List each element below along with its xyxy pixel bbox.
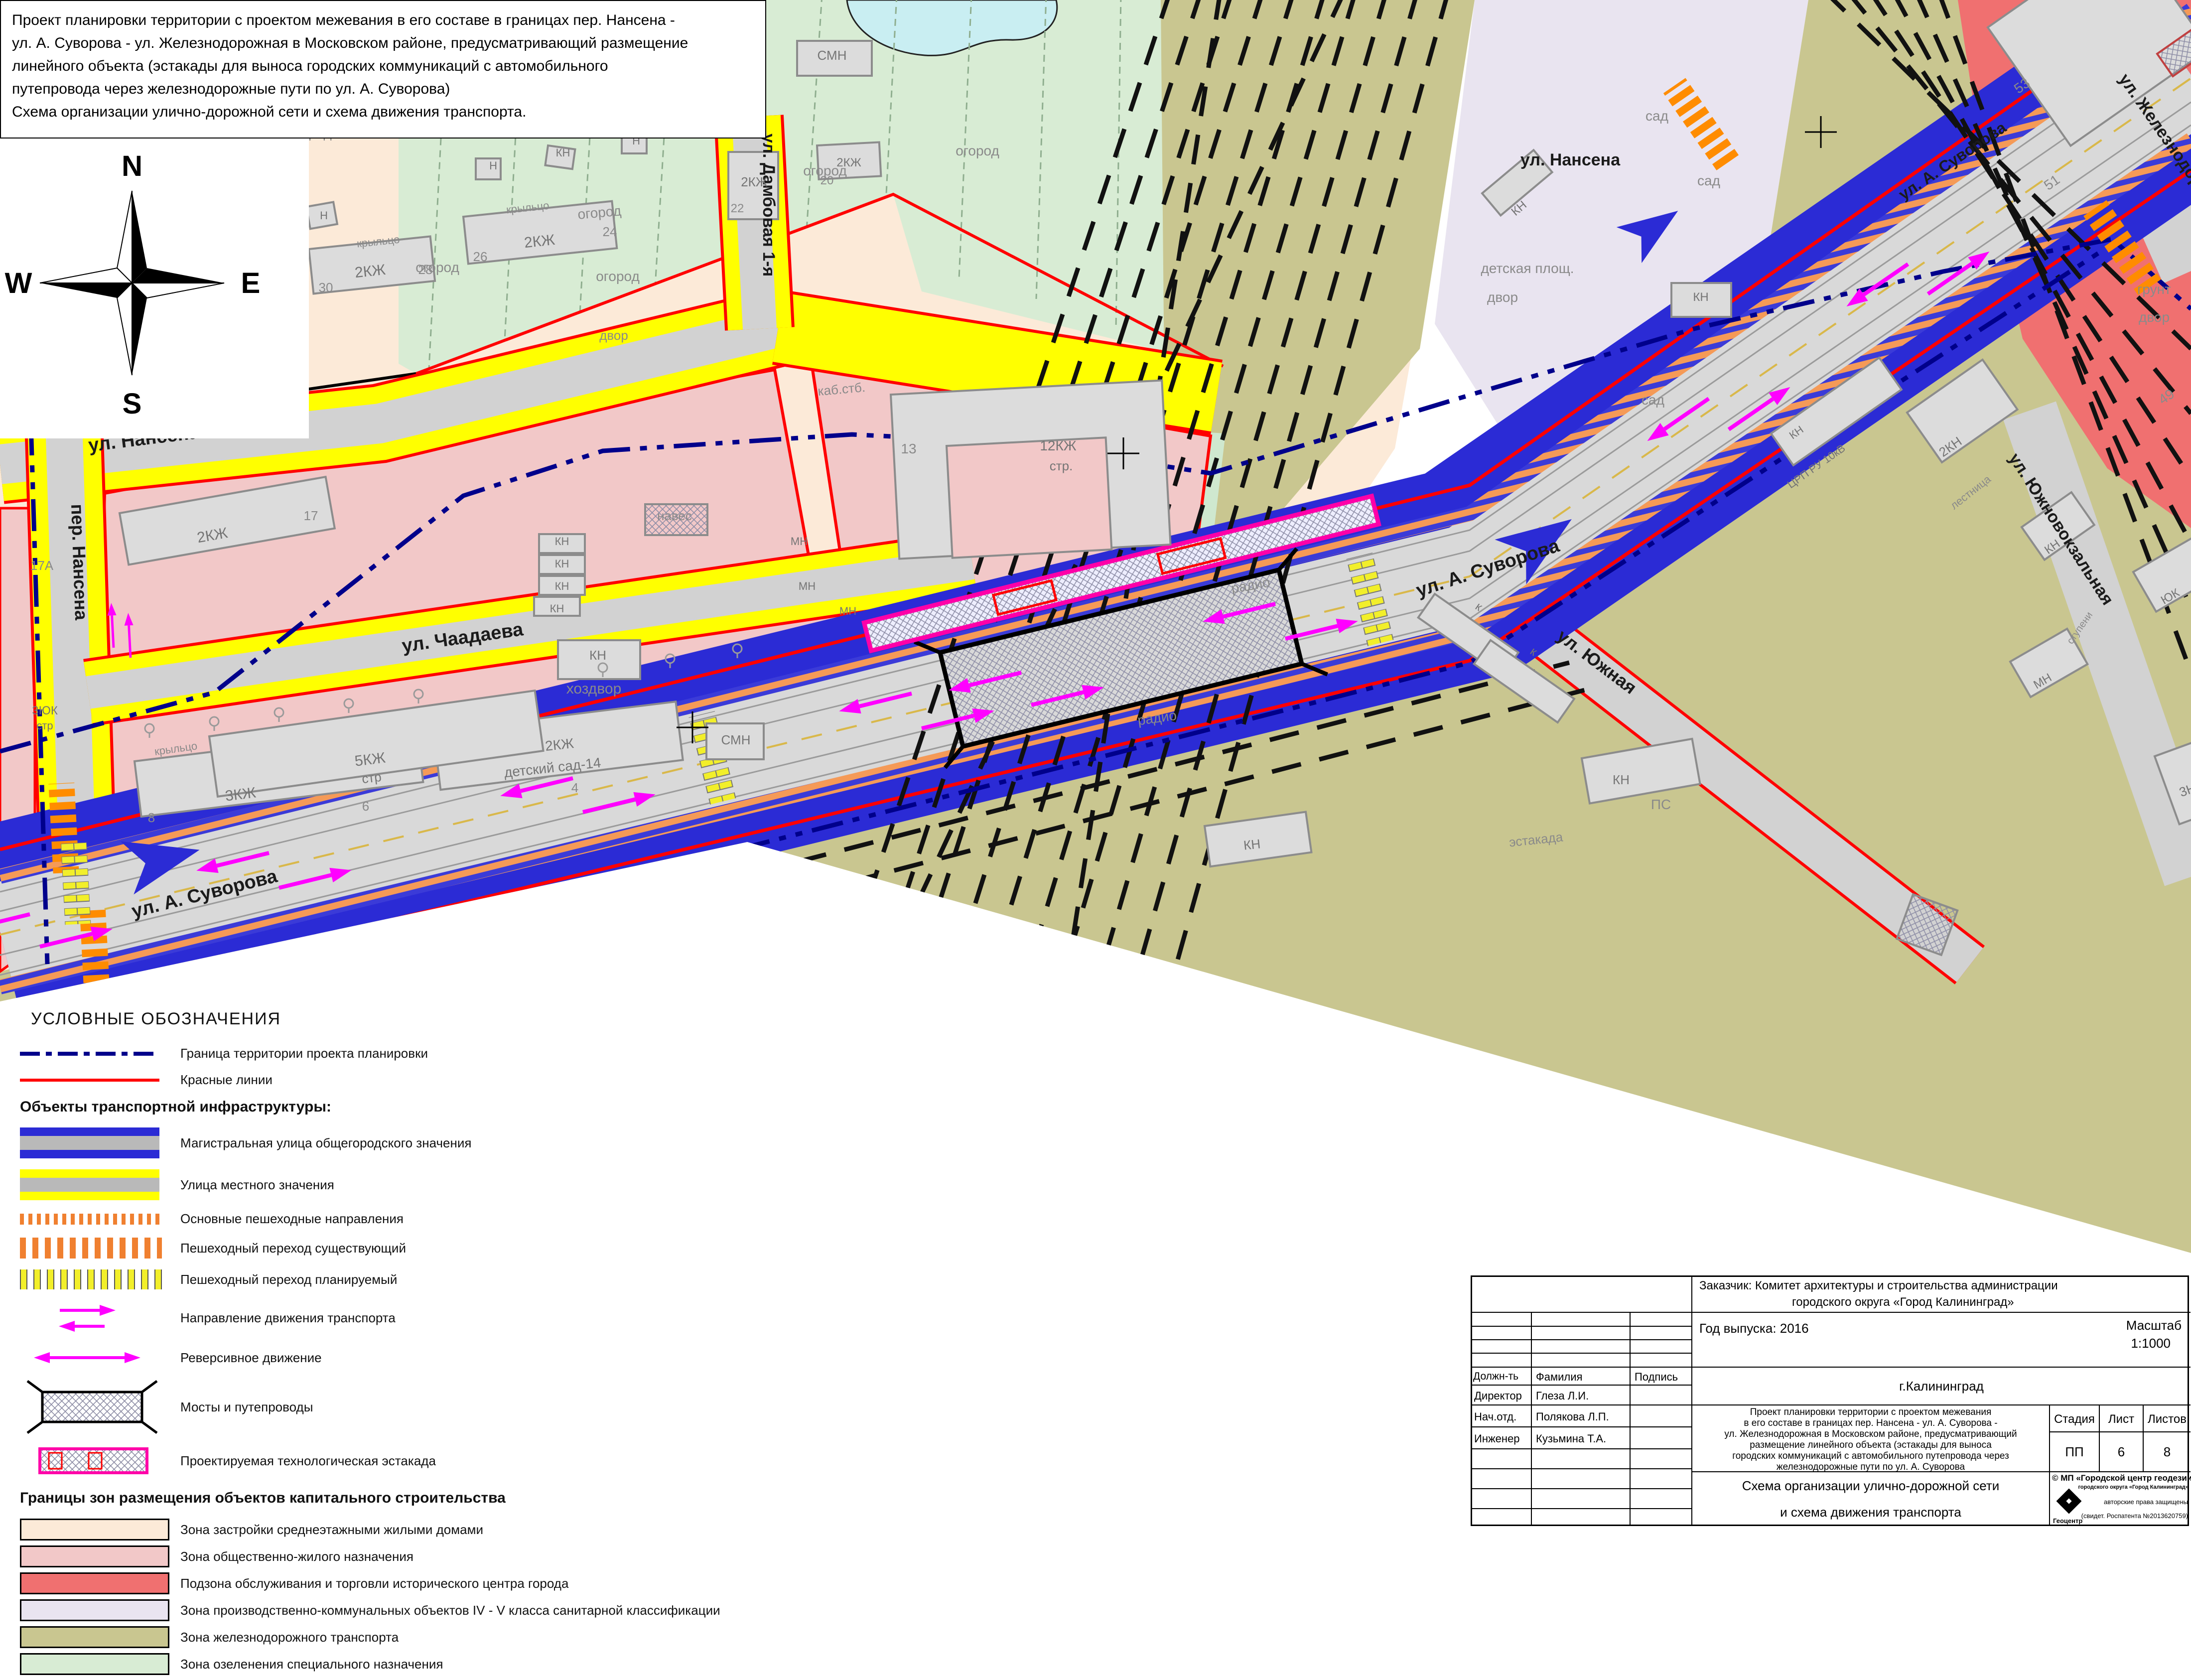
main-street-symbol — [20, 1127, 159, 1158]
empty-cell — [1531, 1488, 1630, 1508]
customer-line1: Заказчик: Комитет архитектуры и строител… — [1699, 1279, 2058, 1293]
title-line: линейного объекта (эстакады для выноса г… — [12, 55, 754, 78]
crossing-planned-symbol — [20, 1269, 162, 1289]
empty-cell — [1531, 1468, 1630, 1488]
area-label: хоздвор — [566, 681, 622, 697]
title-stamp: Заказчик: Комитет архитектуры и строител… — [1471, 1275, 2189, 1526]
building-label: 12КЖ — [1040, 438, 1076, 453]
legend-label: Улица местного значения — [180, 1177, 334, 1193]
legend-zone-midrise: Зона застройки среднеэтажными жилыми дом… — [11, 1519, 768, 1540]
empty-cell — [1472, 1312, 1531, 1326]
building-label: МН — [791, 535, 808, 548]
building-label: КН — [556, 146, 570, 159]
legend-item-crossing-planned: Пешеходный переход планируемый — [11, 1269, 768, 1289]
legend-label: Основные пешеходные направления — [180, 1211, 404, 1227]
legend-zones-header: Границы зон размещения объектов капиталь… — [20, 1490, 768, 1507]
building-label: СМН — [818, 48, 847, 63]
row-position: Нач.отд. — [1472, 1404, 1531, 1426]
building-label: КН — [555, 535, 569, 548]
project-line: размещение линейного объекта (эстакады д… — [1692, 1440, 2049, 1451]
pedestrian-directions-symbol — [20, 1214, 162, 1225]
building-label: 2КЖ — [545, 735, 575, 754]
building-label: КН — [555, 558, 569, 570]
building-label: стр — [36, 719, 53, 732]
street-label: ул. Дамбовая 1-я — [759, 134, 778, 277]
row-sign — [1630, 1385, 1691, 1404]
stamp-project-box: Проект планировки территории с проектом … — [1691, 1404, 2049, 1471]
building-label: КН — [555, 580, 569, 592]
legend-zone-public: Зона общественно-жилого назначения — [11, 1545, 768, 1567]
legend-label: Проектируемая технологическая эстакада — [180, 1453, 436, 1469]
empty-cell — [1531, 1508, 1630, 1526]
legend-item-reversible: Реверсивное движение — [11, 1346, 768, 1369]
traffic-direction-symbol — [20, 1300, 159, 1335]
area-label: двор — [2139, 309, 2170, 325]
empty-cell — [1531, 1339, 1630, 1353]
building-label: Н — [320, 209, 328, 222]
project-line: в его составе в границах пер. Нансена - … — [1692, 1418, 2049, 1429]
empty-cell — [1630, 1508, 1691, 1526]
stage-label-cell: Стадия — [2049, 1404, 2099, 1431]
legend-label: Зона застройки среднеэтажными жилыми дом… — [180, 1522, 483, 1538]
legend-zone-trade: Подзона обслуживания и торговли историче… — [11, 1572, 768, 1594]
title-line: Схема организации улично-дорожной сети и… — [12, 101, 754, 124]
building-label: КН — [1243, 836, 1261, 852]
geocentr-logo-icon — [2053, 1487, 2085, 1517]
building-label: стр — [361, 769, 383, 787]
empty-cell — [1630, 1468, 1691, 1488]
area-label: навес — [657, 508, 692, 523]
row-name: Полякова Л.П. — [1531, 1404, 1630, 1426]
scheme-line1: Схема организации улично-дорожной сети — [1692, 1478, 2049, 1494]
legend-item-bridges: Мосты и путепроводы — [11, 1380, 768, 1434]
year-value: Год выпуска: 2016 — [1699, 1321, 1809, 1336]
scheme-line2: и схема движения транспорта — [1692, 1505, 2049, 1520]
area-label: сад — [1642, 392, 1664, 408]
red-line-symbol — [20, 1079, 159, 1082]
rights-line2: (свидет. Роспатента №2013620759) — [2081, 1512, 2188, 1520]
zone-swatch — [20, 1519, 169, 1540]
area-label: детская площ. — [1481, 261, 1574, 276]
empty-cell — [1630, 1488, 1691, 1508]
sheets-label-cell: Листов — [2143, 1404, 2191, 1431]
building-label: СМН — [721, 732, 751, 747]
legend-item-redlines: Красные линии — [11, 1072, 768, 1088]
building-label: 2КЖ — [354, 262, 387, 281]
legend-label: Мосты и путепроводы — [180, 1400, 313, 1415]
scale-value: 1:1000 — [2131, 1336, 2171, 1351]
house-number: 26 — [473, 249, 488, 264]
stage-value-cell: ПП — [2049, 1431, 2099, 1471]
legend-item-main-street: Магистральная улица общегородского значе… — [11, 1127, 768, 1158]
reversible-symbol — [20, 1346, 159, 1369]
scale-label: Масштаб — [2126, 1318, 2182, 1333]
empty-cell — [1472, 1448, 1531, 1468]
legend-label: Граница территории проекта планировки — [180, 1046, 428, 1061]
local-street-symbol — [20, 1169, 159, 1200]
sheet-title-block: Проект планировки территории с проектом … — [0, 0, 766, 139]
area-label: двор — [599, 328, 628, 343]
customer-line2: городского округа «Город Калининград» — [1792, 1295, 2014, 1309]
row-name: Кузьмина Т.А. — [1531, 1426, 1630, 1448]
legend-item-crossing-existing: Пешеходный переход существующий — [11, 1238, 768, 1259]
legend-item-traffic-direction: Направление движения транспорта — [11, 1300, 768, 1335]
house-number: 17 — [304, 508, 318, 523]
legend-item-local-street: Улица местного значения — [11, 1169, 768, 1200]
stamp-customer-box: Заказчик: Комитет архитектуры и строител… — [1691, 1277, 2191, 1312]
bridge-symbol — [20, 1380, 169, 1434]
plan-sheet: { "title_block": { "lines": [ "Проект пл… — [0, 0, 2191, 1527]
legend-item-ped-directions: Основные пешеходные направления — [11, 1211, 768, 1227]
legend-title: УСЛОВНЫЕ ОБОЗНАЧЕНИЯ — [31, 1009, 768, 1029]
col-name-header: Фамилия — [1531, 1367, 1630, 1385]
project-line: Проект планировки территории с проектом … — [1692, 1407, 2049, 1418]
area-label: огород — [956, 143, 999, 158]
title-line: Проект планировки территории с проектом … — [12, 9, 754, 32]
building-label: 3ЮК — [32, 704, 58, 717]
area-label: огород — [596, 269, 640, 284]
building-label: 2КЖ — [524, 232, 556, 251]
building-label: КН — [1693, 290, 1708, 304]
zone-swatch — [20, 1626, 169, 1648]
house-number: 6 — [362, 799, 369, 814]
empty-cell — [1472, 1326, 1531, 1339]
legend-label: Красные линии — [180, 1072, 273, 1088]
logo-caption: Геоцентр — [2053, 1517, 2082, 1525]
legend-label: Зона общественно-жилого назначения — [180, 1549, 413, 1564]
sheet-label-cell: Лист — [2099, 1404, 2143, 1431]
street-label: пер. Нансена — [67, 504, 92, 621]
legend-item-tech-overpass: Проектируемая технологическая эстакада — [11, 1445, 768, 1477]
col-position-header: Должн-ть — [1472, 1367, 1531, 1385]
title-line: ул. А. Суворова - ул. Железнодорожная в … — [12, 32, 754, 55]
area-label: грунт — [2137, 281, 2171, 297]
legend-label: Зона производственно-коммунальных объект… — [180, 1603, 720, 1618]
house-number: 20 — [821, 174, 834, 187]
empty-cell — [1472, 1353, 1531, 1367]
empty-cell — [1531, 1353, 1630, 1367]
house-number: 22 — [731, 202, 744, 215]
house-number: 8 — [148, 810, 155, 825]
row-sign — [1630, 1404, 1691, 1426]
street-label: ул. Нансена — [1520, 150, 1621, 169]
compass-area: N S W E — [0, 139, 309, 438]
empty-cell — [1472, 1488, 1531, 1508]
empty-cell — [1531, 1326, 1630, 1339]
row-position: Директор — [1472, 1385, 1531, 1404]
org-line: © МП «Городской центр геодезии» — [2052, 1473, 2191, 1483]
legend-label: Реверсивное движение — [180, 1350, 322, 1366]
house-number: 30 — [319, 280, 333, 295]
legend-label: Подзона обслуживания и торговли историче… — [180, 1576, 568, 1591]
map-legend: УСЛОВНЫЕ ОБОЗНАЧЕНИЯ Граница территории … — [11, 1009, 768, 1680]
legend-label: Зона озеленения специального назначения — [180, 1657, 443, 1672]
boundary-line-symbol — [20, 1052, 159, 1056]
legend-label: Направление движения транспорта — [180, 1310, 396, 1326]
empty-cell — [1531, 1448, 1630, 1468]
empty-cell — [1531, 1312, 1630, 1326]
zone-swatch — [20, 1653, 169, 1675]
row-position: Инженер — [1472, 1426, 1531, 1448]
empty-cell — [1472, 1508, 1531, 1526]
area-label: сад — [1697, 173, 1720, 188]
project-line: ул. Железнодорожная в Московском районе,… — [1692, 1429, 2049, 1440]
compass-w: W — [5, 267, 32, 299]
building-label: МН — [839, 605, 856, 617]
empty-cell — [1630, 1326, 1691, 1339]
row-name: Глеза Л.И. — [1531, 1385, 1630, 1404]
building-label: 2КЖ — [741, 174, 768, 189]
house-number: 13 — [901, 441, 916, 456]
empty-cell — [1630, 1312, 1691, 1326]
compass-n: N — [122, 150, 142, 182]
legend-zone-railway: Зона железнодорожного транспорта — [11, 1626, 768, 1648]
legend-zone-green: Зона озеленения специального назначения — [11, 1653, 768, 1675]
empty-cell — [1630, 1448, 1691, 1468]
legend-zone-industrial: Зона производственно-коммунальных объект… — [11, 1599, 768, 1621]
org-sub: городского округа «Город Калининград» — [2078, 1484, 2189, 1490]
empty-cell — [1472, 1468, 1531, 1488]
empty-cell — [1630, 1353, 1691, 1367]
building-label: стр. — [1050, 458, 1073, 473]
building-label: КН — [589, 648, 606, 663]
crossing-existing-symbol — [20, 1238, 162, 1259]
col-sign-header: Подпись — [1630, 1367, 1691, 1385]
legend-item-boundary: Граница территории проекта планировки — [11, 1046, 768, 1061]
house-number: 24 — [603, 224, 617, 239]
title-line: путепровода через железнодорожные пути п… — [12, 78, 754, 101]
rights-line1: авторские права защищены — [2104, 1498, 2188, 1506]
compass-rose: N S W E — [0, 139, 309, 438]
row-sign — [1630, 1426, 1691, 1448]
zone-swatch — [20, 1599, 169, 1621]
legend-label: Пешеходный переход планируемый — [180, 1272, 397, 1287]
house-number: 17А — [30, 558, 54, 573]
building-label: КН — [550, 602, 564, 615]
legend-label: Пешеходный переход существующий — [180, 1241, 406, 1256]
house-number: 28 — [418, 262, 433, 277]
tech-overpass-symbol — [20, 1445, 169, 1477]
sheet-value-cell: 6 — [2099, 1431, 2143, 1471]
area-label: сад — [1645, 108, 1668, 124]
building-label: КН — [1613, 772, 1630, 787]
legend-transport-header: Объекты транспортной инфраструктуры: — [20, 1099, 768, 1116]
legend-label: Зона железнодорожного транспорта — [180, 1630, 399, 1645]
empty-cell — [1630, 1339, 1691, 1353]
sheets-value-cell: 8 — [2143, 1431, 2191, 1471]
building-label: МН — [799, 580, 816, 592]
empty-cell — [1472, 1339, 1531, 1353]
legend-label: Магистральная улица общегородского значе… — [180, 1135, 471, 1151]
project-line: городских коммуникаций с автомобильного … — [1692, 1451, 2049, 1462]
stamp-city-box: г.Калининград — [1691, 1367, 2191, 1404]
building-label: Н — [489, 159, 497, 172]
compass-s: S — [123, 388, 142, 420]
stamp-year-box: Год выпуска: 2016 Масштаб 1:1000 — [1691, 1312, 2191, 1367]
house-number: 4 — [571, 780, 578, 795]
zone-swatch — [20, 1545, 169, 1567]
stamp-org-box: © МП «Городской центр геодезии» городско… — [2049, 1471, 2191, 1526]
area-label: ПС — [1651, 797, 1671, 812]
zone-swatch — [20, 1572, 169, 1594]
compass-e: E — [241, 267, 261, 299]
stamp-scheme-box: Схема организации улично-дорожной сети и… — [1691, 1471, 2049, 1526]
building-label: 2КЖ — [836, 156, 861, 169]
area-label: двор — [1487, 289, 1518, 305]
city-value: г.Калининград — [1692, 1379, 2191, 1394]
